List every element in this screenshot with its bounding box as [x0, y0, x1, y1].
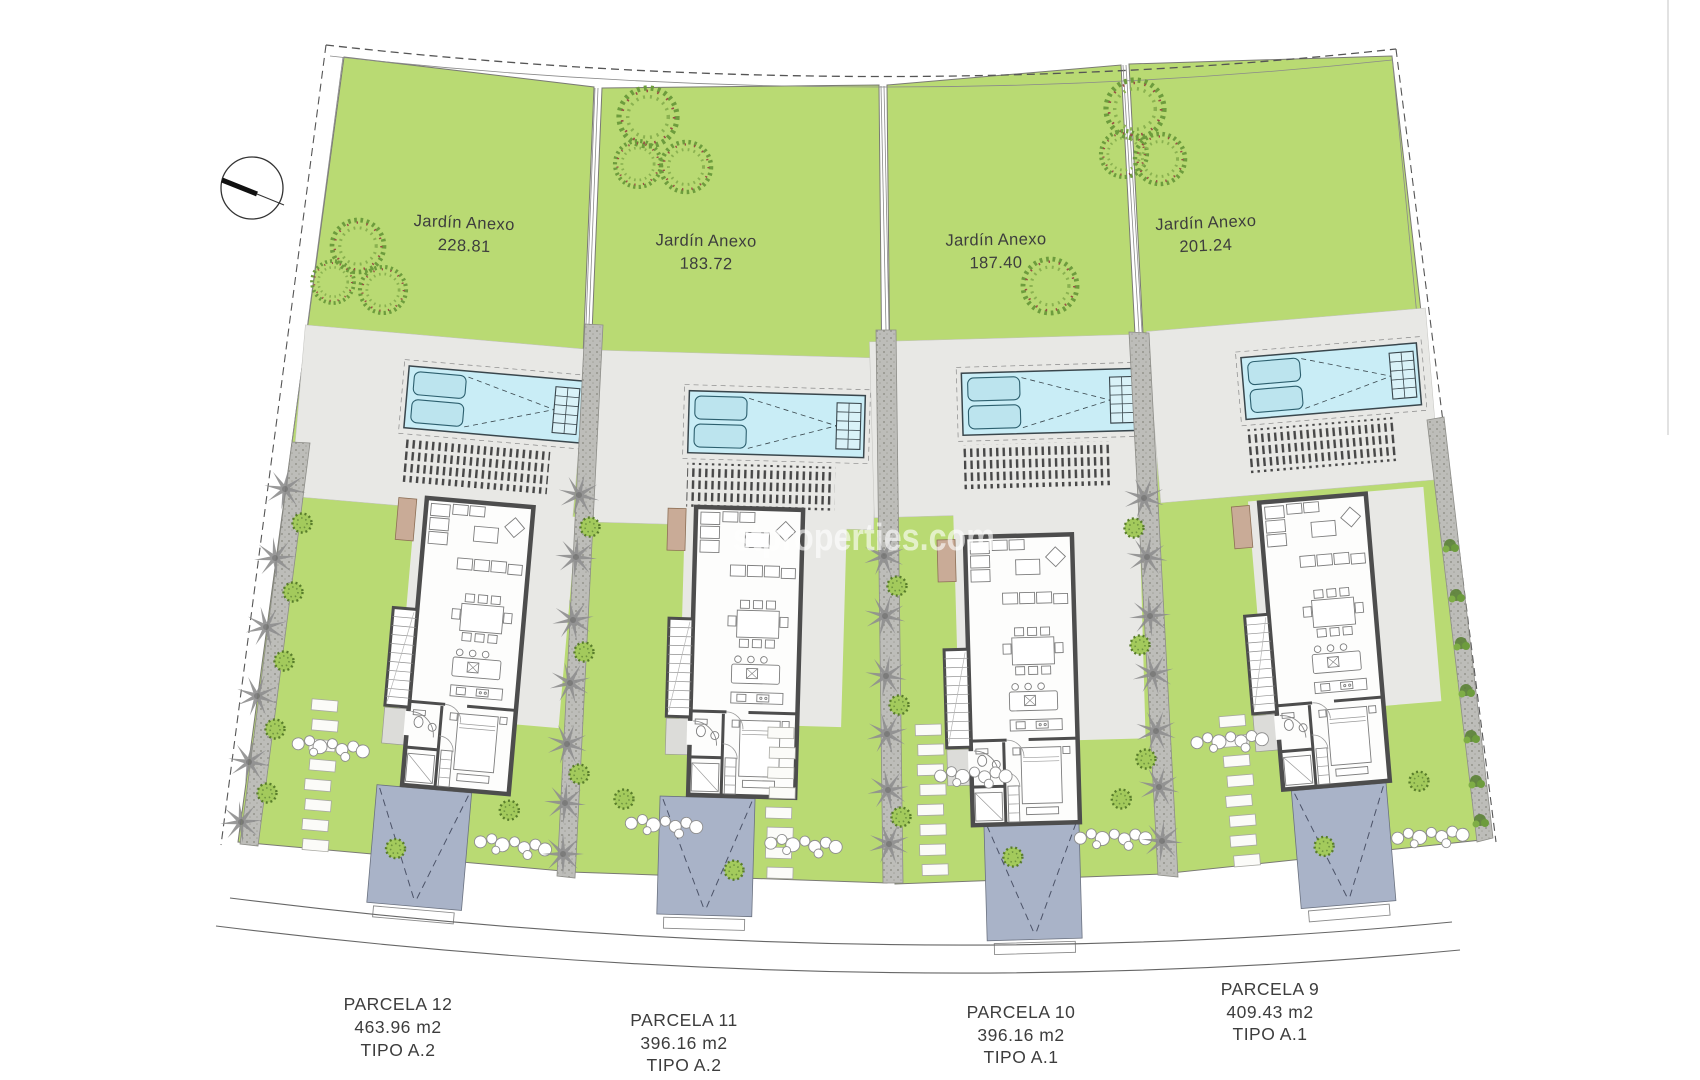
- watermark-text: stproperties.com: [733, 517, 995, 559]
- swimming-pool: [683, 385, 871, 464]
- parcel-10-type: TIPO A.1: [984, 1047, 1059, 1067]
- swimming-pool: [956, 362, 1144, 441]
- bush-icon: [1125, 519, 1144, 538]
- deck: [686, 463, 835, 511]
- bush-icon: [266, 720, 285, 739]
- garden-label: Jardín Anexo: [945, 230, 1046, 249]
- bush-icon: [888, 577, 907, 596]
- bush-icon: [575, 643, 594, 662]
- driveway: [984, 820, 1083, 955]
- parcel-11-name: PARCELA 11: [630, 1010, 737, 1030]
- bush-icon: [275, 652, 294, 671]
- bush-icon: [570, 765, 589, 784]
- parcel-12-type: TIPO A.2: [361, 1040, 436, 1060]
- bush-icon: [293, 514, 312, 533]
- garden-area-value: 183.72: [680, 255, 733, 274]
- north-arrow-icon: [221, 157, 284, 219]
- swimming-pool: [1235, 337, 1427, 426]
- driveway: [1291, 783, 1397, 922]
- bush-icon: [1131, 636, 1150, 655]
- garden-area-value: 201.24: [1179, 236, 1233, 256]
- parcel-11-area: 396.16 m2: [640, 1033, 727, 1053]
- parcel-12-name: PARCELA 12: [344, 994, 453, 1014]
- parcel-10-name: PARCELA 10: [967, 1002, 1076, 1022]
- garden-area-value: 228.81: [437, 236, 491, 256]
- bush-icon: [258, 784, 277, 803]
- bush-icon: [890, 696, 909, 715]
- garden-area-value: 187.40: [969, 254, 1022, 273]
- swimming-pool: [398, 360, 590, 450]
- bush-icon: [581, 518, 600, 537]
- deck: [963, 441, 1112, 489]
- driveway: [366, 785, 472, 925]
- bush-icon: [1137, 750, 1156, 769]
- parcel-9-area: 409.43 m2: [1226, 1002, 1313, 1022]
- parcel-10-area: 396.16 m2: [977, 1025, 1064, 1045]
- parcel-9-type: TIPO A.1: [1233, 1024, 1308, 1044]
- site-plan-page: Jardín Anexo 228.81 Jardín Anexo 183.72 …: [0, 0, 1700, 1080]
- parcel-12-area: 463.96 m2: [354, 1017, 441, 1037]
- parcel-11-type: TIPO A.2: [647, 1055, 722, 1075]
- bush-icon: [892, 808, 911, 827]
- site-plan-svg: Jardín Anexo 228.81 Jardín Anexo 183.72 …: [0, 0, 1700, 1080]
- bush-icon: [284, 583, 303, 602]
- parcel-9-name: PARCELA 9: [1221, 979, 1320, 999]
- garden-label: Jardín Anexo: [655, 231, 756, 250]
